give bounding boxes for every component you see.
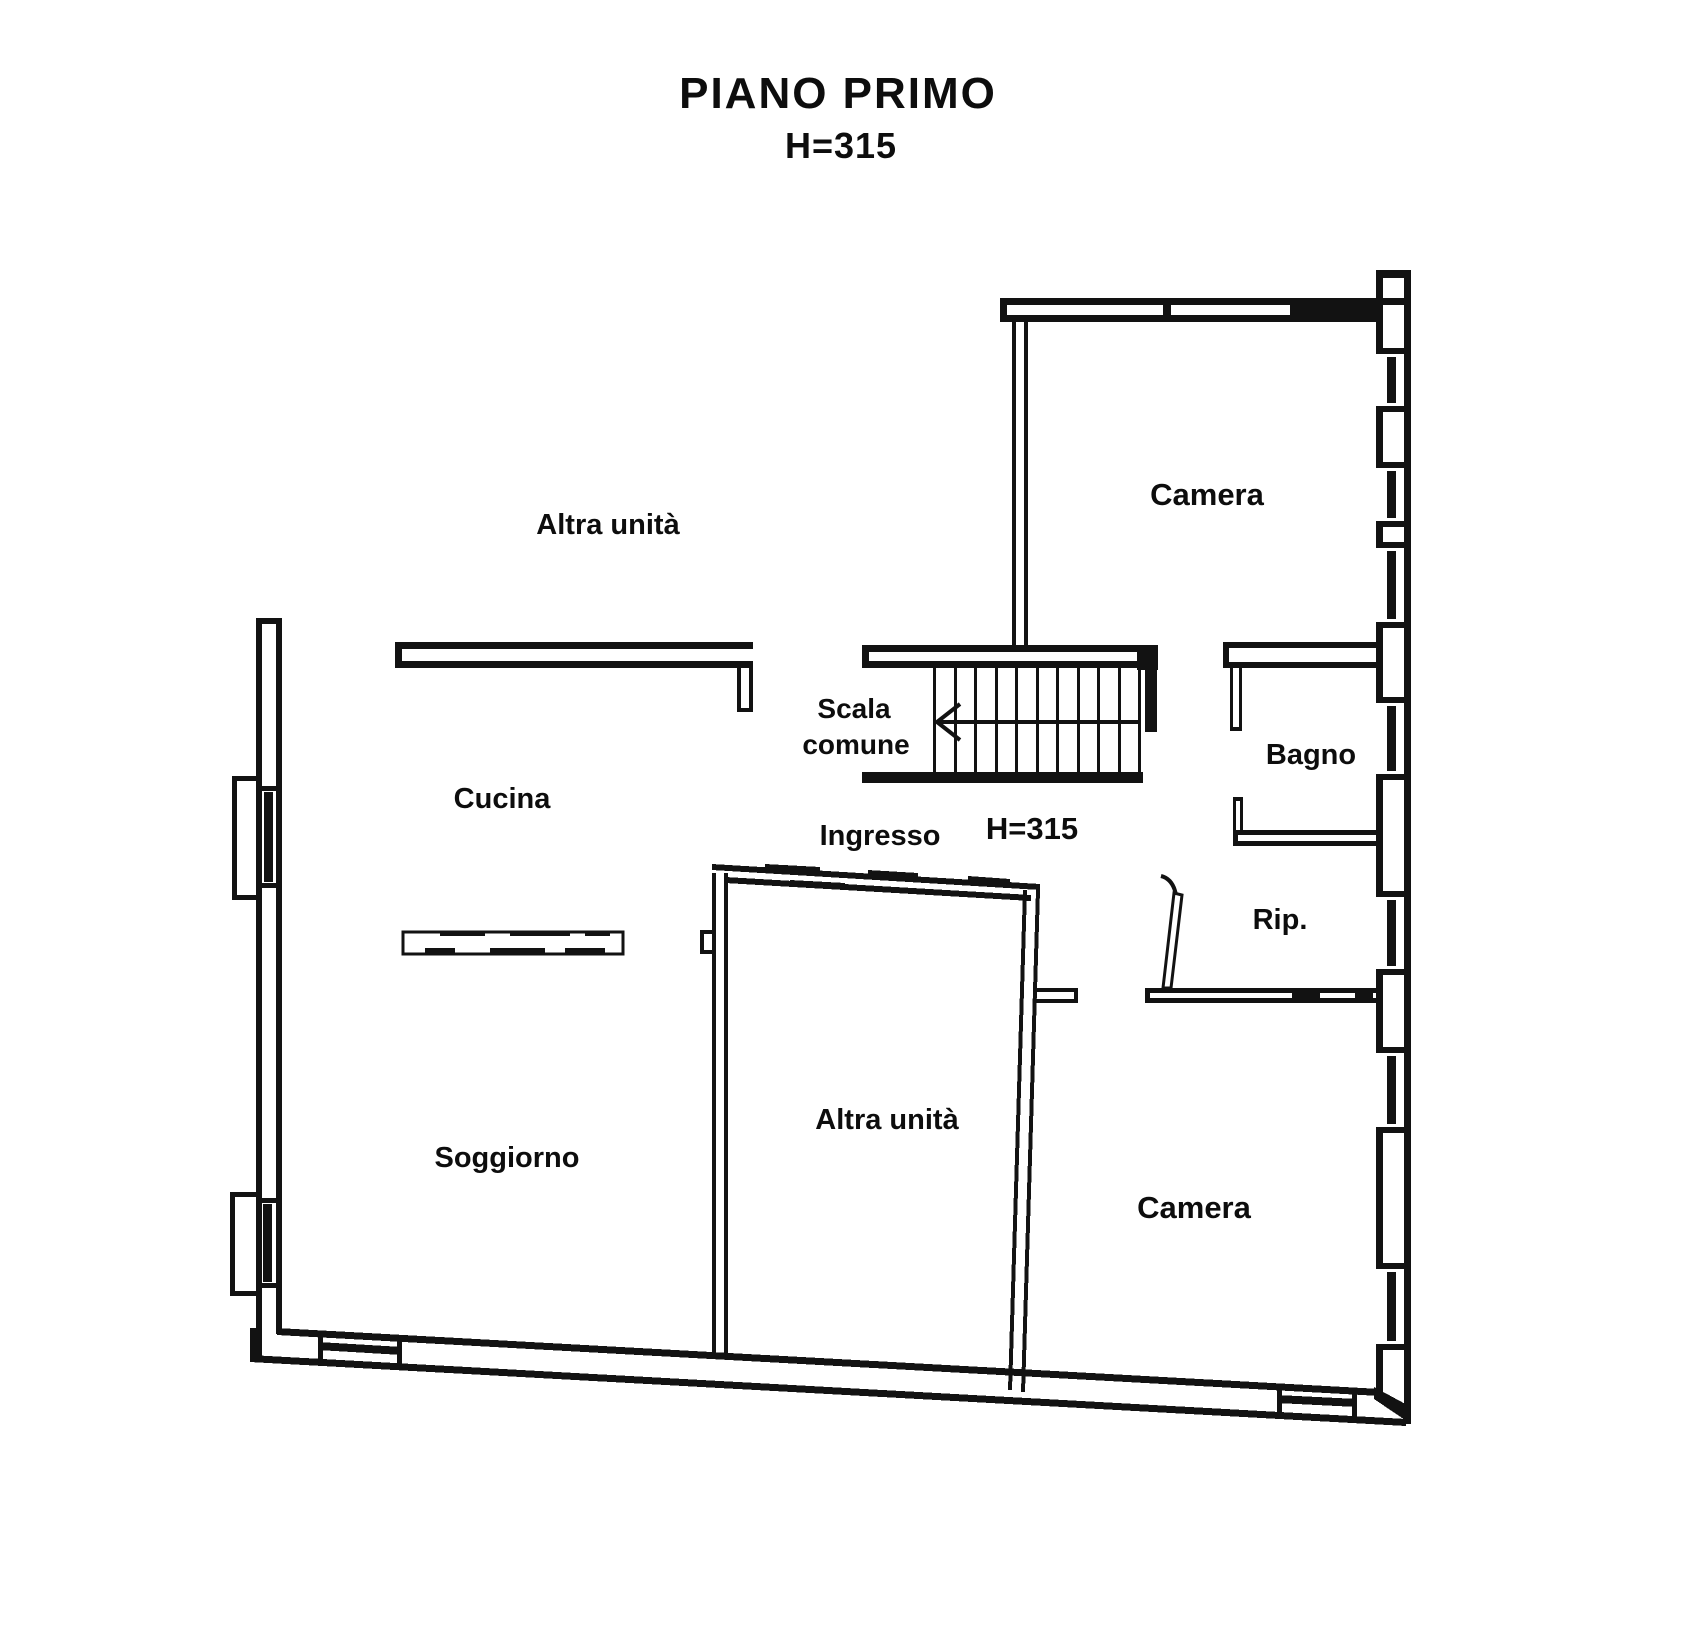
soggiorno-divider-wall xyxy=(700,873,728,1355)
top-exterior-wall xyxy=(1000,298,1411,322)
cucina-top-wall xyxy=(395,642,753,712)
room-label-camera-top: Camera xyxy=(1150,477,1264,512)
title-block: PIANO PRIMO H=315 xyxy=(679,69,997,166)
camera-bottom-top-wall xyxy=(1145,988,1378,1003)
room-label-altra-unita-center: Altra unità xyxy=(815,1104,959,1136)
room-label-altra-unita-top: Altra unità xyxy=(536,509,680,541)
floor-plan-page: PIANO PRIMO H=315 xyxy=(0,0,1704,1644)
room-label-camera-bottom: Camera xyxy=(1137,1190,1251,1225)
room-label-soggiorno: Soggiorno xyxy=(435,1142,580,1174)
room-label-cucina: Cucina xyxy=(454,783,552,815)
room-label-ingresso: Ingresso xyxy=(820,820,941,852)
stair-enclosure xyxy=(862,645,1158,783)
bottom-exterior-wall xyxy=(250,1328,1406,1426)
room-height-note: H=315 xyxy=(986,811,1078,846)
room-label-bagno: Bagno xyxy=(1266,739,1356,771)
room-labels: Altra unità Camera Cucina Scala comune I… xyxy=(435,477,1357,1225)
central-unit-right-wall xyxy=(1008,890,1078,1392)
central-unit-top-wall xyxy=(712,864,1040,901)
room-label-rip: Rip. xyxy=(1253,904,1308,936)
room-label-scala-comune-line1: Scala xyxy=(817,693,891,724)
page-title: PIANO PRIMO xyxy=(679,69,997,118)
page-subtitle: H=315 xyxy=(785,125,897,166)
camera-top-left-wall xyxy=(1012,322,1028,647)
room-label-scala-comune-line2: comune xyxy=(802,729,909,760)
right-exterior-wall xyxy=(1374,270,1411,1424)
kitchen-counter xyxy=(403,931,623,954)
rip-door-leaf xyxy=(1161,876,1182,988)
floor-plan-svg: PIANO PRIMO H=315 xyxy=(0,0,1704,1644)
